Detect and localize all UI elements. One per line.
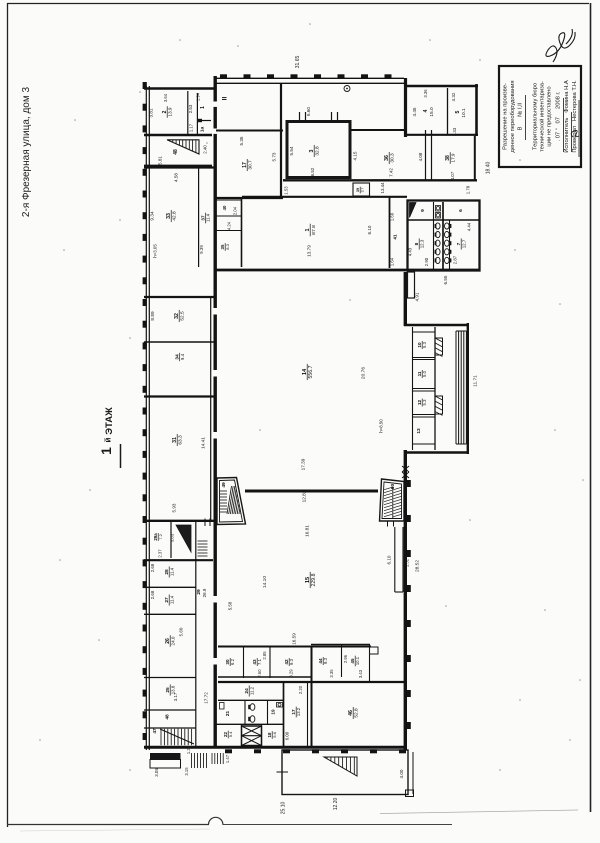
svg-text:2.87: 2.87 xyxy=(453,255,458,264)
svg-text:556.7: 556.7 xyxy=(308,365,314,378)
svg-text:13.44: 13.44 xyxy=(380,182,385,194)
svg-text:3.35: 3.35 xyxy=(329,669,334,678)
svg-text:ции не предоставлено: ции не предоставлено xyxy=(547,86,553,146)
svg-text:31.65: 31.65 xyxy=(295,56,301,69)
svg-text:1: 1 xyxy=(200,106,206,109)
svg-text:5.58: 5.58 xyxy=(228,601,233,610)
svg-text:48: 48 xyxy=(165,714,171,720)
svg-text:Проверил Нестерова Т.Н.: Проверил Нестерова Т.Н. xyxy=(572,80,578,153)
svg-text:5.81: 5.81 xyxy=(158,156,163,165)
svg-text:9.4: 9.4 xyxy=(180,353,185,360)
svg-text:25.10: 25.10 xyxy=(281,802,287,815)
svg-text:4.32: 4.32 xyxy=(451,92,456,101)
svg-text:4.00: 4.00 xyxy=(399,769,404,778)
svg-text:3.7: 3.7 xyxy=(360,188,364,193)
svg-text:5.35: 5.35 xyxy=(239,136,244,145)
svg-text:6.2: 6.2 xyxy=(230,658,235,665)
svg-text:6.10: 6.10 xyxy=(367,225,372,234)
svg-text:ЭТАЖ: ЭТАЖ xyxy=(104,407,115,435)
svg-text:12.7: 12.7 xyxy=(461,239,466,248)
svg-text:11.4: 11.4 xyxy=(206,213,211,222)
svg-text:42.8: 42.8 xyxy=(172,211,178,221)
svg-text:17.39: 17.39 xyxy=(301,458,306,470)
svg-text:4: 4 xyxy=(423,109,429,112)
svg-text:2.68: 2.68 xyxy=(150,590,155,599)
svg-text:9.3: 9.3 xyxy=(289,658,294,665)
svg-text:9.34: 9.34 xyxy=(150,211,155,221)
svg-text:2.33: 2.33 xyxy=(452,127,457,136)
svg-text:26.9: 26.9 xyxy=(202,588,207,597)
svg-text:32.8: 32.8 xyxy=(315,146,321,156)
svg-text:13.9: 13.9 xyxy=(168,107,173,116)
svg-text:h=3.05: h=3.05 xyxy=(153,244,158,258)
svg-text:5.60: 5.60 xyxy=(179,627,184,636)
svg-text:1.17: 1.17 xyxy=(189,123,194,132)
svg-text:5.73: 5.73 xyxy=(272,152,277,161)
svg-text:1.53: 1.53 xyxy=(284,186,289,195)
svg-text:8.89: 8.89 xyxy=(150,311,155,321)
svg-text:1: 1 xyxy=(98,447,114,455)
svg-text:11.4: 11.4 xyxy=(169,567,174,576)
svg-text:4.24: 4.24 xyxy=(227,221,232,230)
svg-text:6.60: 6.60 xyxy=(306,107,311,116)
svg-text:14.41: 14.41 xyxy=(201,437,206,449)
svg-text:3.05: 3.05 xyxy=(154,768,159,777)
svg-text:1.94: 1.94 xyxy=(196,92,201,101)
svg-text:10.1: 10.1 xyxy=(355,656,360,665)
svg-text:50: 50 xyxy=(390,484,396,490)
svg-text:17.9: 17.9 xyxy=(451,153,456,162)
svg-text:1.52: 1.52 xyxy=(405,558,410,567)
svg-text:13.2: 13.2 xyxy=(296,707,301,716)
svg-text:7.42: 7.42 xyxy=(389,168,394,177)
svg-text:1.25: 1.25 xyxy=(186,745,191,754)
svg-text:2.04: 2.04 xyxy=(233,206,238,215)
svg-text:4.44: 4.44 xyxy=(467,222,472,231)
svg-text:15.0: 15.0 xyxy=(429,107,435,117)
svg-text:4.08: 4.08 xyxy=(418,152,423,161)
svg-text:40: 40 xyxy=(222,205,227,210)
svg-text:6.52: 6.52 xyxy=(310,167,315,176)
svg-text:6.55: 6.55 xyxy=(443,275,448,284)
svg-text:3.64: 3.64 xyxy=(163,93,168,102)
svg-text:18.40: 18.40 xyxy=(486,162,492,175)
svg-text:й: й xyxy=(104,437,113,442)
svg-text:В № I,II: В № I,II xyxy=(517,102,523,130)
svg-text:4.15: 4.15 xyxy=(353,151,358,160)
svg-text:технической инвентариза-: технической инвентариза- xyxy=(539,81,546,152)
svg-text:5.93: 5.93 xyxy=(172,503,177,512)
svg-text:3.15: 3.15 xyxy=(184,767,189,776)
svg-text:21: 21 xyxy=(225,711,230,717)
svg-text:47: 47 xyxy=(152,728,158,734)
svg-text:52.8: 52.8 xyxy=(354,708,360,718)
svg-text:4.91: 4.91 xyxy=(415,292,420,301)
svg-text:2.20: 2.20 xyxy=(298,685,303,694)
svg-text:3.36: 3.36 xyxy=(423,89,428,98)
svg-text:9.3: 9.3 xyxy=(323,657,328,664)
svg-text:13: 13 xyxy=(416,428,422,434)
svg-text:II: II xyxy=(222,97,229,101)
svg-text:6.10: 6.10 xyxy=(387,555,392,564)
svg-text:2.37: 2.37 xyxy=(158,549,163,558)
svg-text:2.60: 2.60 xyxy=(257,669,262,678)
svg-text:20.76: 20.76 xyxy=(361,367,367,380)
svg-text:. 07 “ 07 2008 г.: . 07 “ 07 2008 г. xyxy=(556,91,562,141)
svg-text:9.39: 9.39 xyxy=(199,245,204,254)
svg-text:5.54: 5.54 xyxy=(289,146,294,155)
svg-text:4.58: 4.58 xyxy=(174,173,179,182)
svg-text:3.29: 3.29 xyxy=(289,669,294,678)
svg-text:11.2: 11.2 xyxy=(249,686,254,695)
svg-text:Разрешение на произве-: Разрешение на произве- xyxy=(503,83,509,150)
svg-text:3.03: 3.03 xyxy=(170,533,175,542)
svg-text:Территориальному бюро: Территориальному бюро xyxy=(532,83,538,150)
svg-text:48: 48 xyxy=(173,149,179,155)
svg-text:19: 19 xyxy=(271,709,276,715)
svg-text:5.4: 5.4 xyxy=(228,731,233,737)
svg-text:h=8.50: h=8.50 xyxy=(379,419,384,433)
svg-text:4.43: 4.43 xyxy=(408,247,413,256)
svg-text:1.47: 1.47 xyxy=(225,754,230,763)
svg-text:1а: 1а xyxy=(200,127,206,133)
svg-text:5: 5 xyxy=(455,110,461,113)
svg-text:4.45: 4.45 xyxy=(412,107,417,116)
svg-text:8.3: 8.3 xyxy=(225,243,230,249)
svg-text:49: 49 xyxy=(221,482,227,488)
svg-text:17.72: 17.72 xyxy=(204,692,209,704)
svg-text:5.6: 5.6 xyxy=(272,731,277,737)
svg-text:3.43: 3.43 xyxy=(358,669,363,678)
svg-text:4.07: 4.07 xyxy=(450,171,455,180)
svg-text:5.3: 5.3 xyxy=(422,399,427,406)
svg-text:6.00: 6.00 xyxy=(285,731,290,740)
svg-text:5.3: 5.3 xyxy=(422,341,427,348)
svg-text:2.96: 2.96 xyxy=(343,654,348,663)
svg-text:3.81: 3.81 xyxy=(149,108,154,117)
svg-text:7.2: 7.2 xyxy=(158,533,163,539)
svg-text:2.85: 2.85 xyxy=(262,651,267,660)
svg-text:63.3: 63.3 xyxy=(178,435,184,445)
svg-text:1.69: 1.69 xyxy=(390,212,395,221)
svg-text:10.1: 10.1 xyxy=(461,108,467,118)
svg-text:30.3: 30.3 xyxy=(390,153,396,163)
svg-text:11.71: 11.71 xyxy=(473,375,479,387)
svg-text:11.4: 11.4 xyxy=(169,595,174,604)
svg-text:12.20: 12.20 xyxy=(333,798,339,811)
svg-text:229.8: 229.8 xyxy=(311,573,317,586)
svg-text:денное переоборудования: денное переоборудования xyxy=(510,81,516,153)
svg-text:28.52: 28.52 xyxy=(415,560,421,572)
svg-text:2-я Фрезерная улица, дом 3: 2-я Фрезерная улица, дом 3 xyxy=(21,87,32,218)
svg-text:30.7: 30.7 xyxy=(248,160,254,170)
svg-text:5.0: 5.0 xyxy=(422,370,427,377)
svg-text:41: 41 xyxy=(393,234,398,240)
svg-text:16.59: 16.59 xyxy=(292,633,297,645)
svg-text:14.10: 14.10 xyxy=(262,576,268,588)
svg-text:87.8: 87.8 xyxy=(311,225,317,235)
svg-text:52.5: 52.5 xyxy=(180,311,186,321)
svg-text:3.17: 3.17 xyxy=(173,692,178,701)
svg-text:12.3: 12.3 xyxy=(419,239,424,248)
svg-text:6: 6 xyxy=(458,209,464,212)
svg-text:Исполнитель Фомина Н.А: Исполнитель Фомина Н.А xyxy=(564,80,570,153)
svg-text:24.0: 24.0 xyxy=(171,636,176,645)
svg-text:2.40: 2.40 xyxy=(203,145,208,154)
svg-text:2.90: 2.90 xyxy=(424,257,429,266)
svg-text:1.64: 1.64 xyxy=(390,257,395,266)
svg-text:13.79: 13.79 xyxy=(307,245,312,257)
svg-text:9: 9 xyxy=(420,209,426,212)
svg-text:2.53: 2.53 xyxy=(188,104,193,113)
svg-text:1.78: 1.78 xyxy=(466,185,471,194)
svg-text:2.68: 2.68 xyxy=(150,563,155,572)
svg-text:16.81: 16.81 xyxy=(305,525,310,537)
